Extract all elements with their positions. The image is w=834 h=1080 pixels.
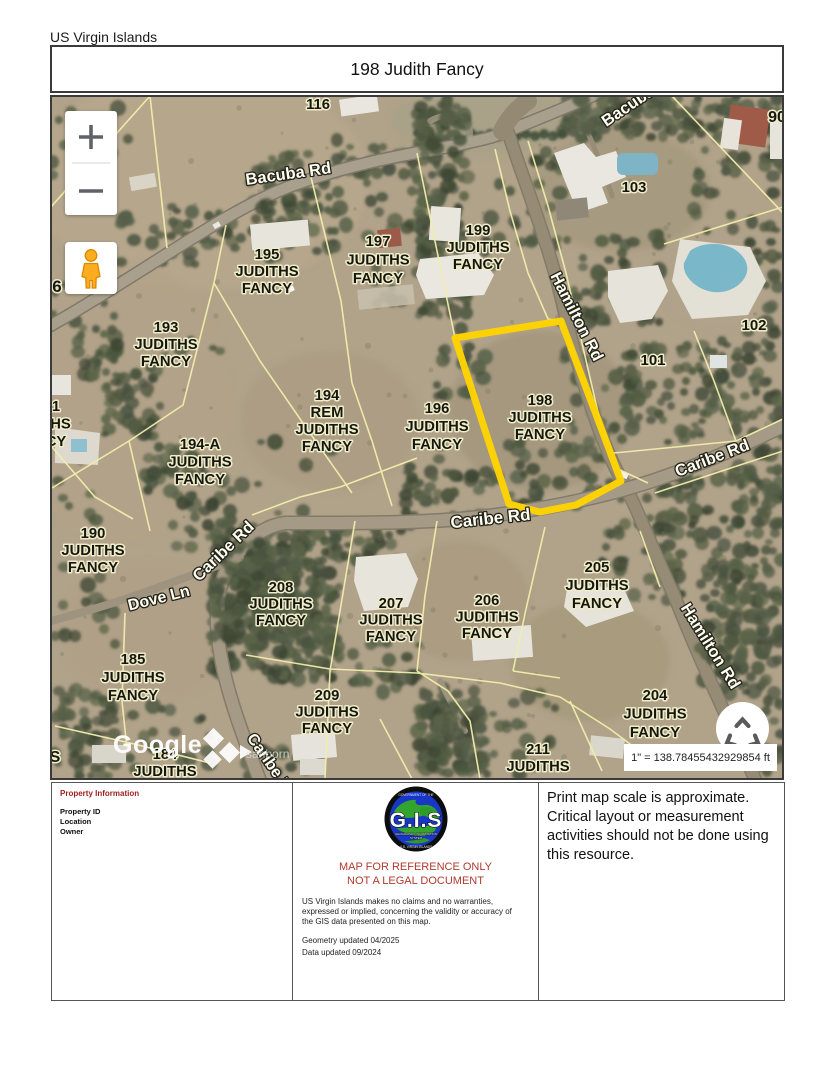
svg-text:JUDITHS: JUDITHS	[565, 578, 628, 594]
svg-text:FANCY: FANCY	[353, 271, 403, 287]
svg-text:FANCY: FANCY	[630, 725, 680, 741]
svg-text:209: 209	[315, 688, 340, 704]
svg-text:JUDITHS: JUDITHS	[359, 613, 422, 629]
svg-text:FANCY: FANCY	[453, 257, 503, 273]
svg-text:U.S. VIRGIN ISLANDS: U.S. VIRGIN ISLANDS	[399, 845, 432, 849]
svg-text:JUDITHS: JUDITHS	[61, 543, 124, 559]
svg-text:207: 207	[379, 596, 404, 612]
svg-text:FANCY: FANCY	[302, 721, 352, 737]
svg-text:JUDITHS: JUDITHS	[346, 253, 409, 269]
svg-text:90: 90	[768, 109, 782, 126]
svg-text:FANCY: FANCY	[175, 472, 225, 488]
svg-text:FANCY: FANCY	[572, 596, 622, 612]
svg-text:101: 101	[640, 352, 665, 369]
svg-text:JUDITHS: JUDITHS	[249, 597, 312, 613]
svg-text:211: 211	[526, 742, 550, 758]
svg-text:CY: CY	[52, 434, 66, 450]
svg-text:GOVERNMENT OF THE: GOVERNMENT OF THE	[398, 793, 433, 797]
svg-text:195: 195	[255, 247, 280, 263]
svg-text:204: 204	[643, 688, 668, 704]
svg-text:JUDITHS: JUDITHS	[295, 422, 358, 438]
svg-text:FANCY: FANCY	[302, 439, 352, 455]
svg-text:REM: REM	[311, 405, 344, 421]
svg-text:194-A: 194-A	[180, 437, 221, 453]
svg-text:JUDITHS: JUDITHS	[508, 410, 571, 426]
svg-text:197: 197	[366, 234, 391, 250]
svg-text:JUDITHS: JUDITHS	[133, 764, 196, 778]
svg-text:JUDITHS: JUDITHS	[446, 240, 509, 256]
svg-text:Google: Google	[113, 731, 202, 759]
svg-text:185: 185	[121, 652, 146, 668]
svg-text:SYSTEM: SYSTEM	[409, 836, 422, 840]
svg-text:sanborn: sanborn	[246, 747, 289, 761]
svg-text:JUDITHS: JUDITHS	[405, 419, 468, 435]
svg-text:194: 194	[315, 388, 340, 404]
svg-text:FANCY: FANCY	[256, 613, 306, 629]
svg-text:JUDITHS: JUDITHS	[506, 759, 569, 775]
svg-text:FANCY: FANCY	[366, 629, 416, 645]
svg-text:JUDITHS: JUDITHS	[101, 670, 164, 686]
svg-text:199: 199	[466, 223, 491, 239]
svg-text:THS: THS	[52, 417, 71, 433]
svg-text:198: 198	[528, 393, 553, 409]
svg-text:FANCY: FANCY	[242, 281, 292, 297]
svg-text:1: 1	[52, 399, 60, 415]
svg-text:JUDITHS: JUDITHS	[134, 337, 197, 353]
svg-text:FANCY: FANCY	[68, 560, 118, 576]
svg-text:206: 206	[475, 593, 500, 609]
svg-text:196: 196	[425, 401, 450, 417]
svg-text:S: S	[52, 749, 61, 766]
svg-text:JUDITHS: JUDITHS	[168, 455, 231, 471]
svg-text:190: 190	[81, 526, 106, 542]
svg-text:FANCY: FANCY	[515, 427, 565, 443]
svg-text:FANCY: FANCY	[141, 354, 191, 370]
svg-text:193: 193	[154, 320, 179, 336]
svg-text:JUDITHS: JUDITHS	[455, 610, 518, 626]
svg-text:205: 205	[585, 560, 610, 576]
svg-text:FANCY: FANCY	[108, 688, 158, 704]
svg-text:102: 102	[741, 317, 766, 334]
svg-text:6: 6	[52, 277, 61, 296]
svg-text:116: 116	[306, 97, 330, 113]
svg-text:JUDITHS: JUDITHS	[235, 264, 298, 280]
svg-text:FANCY: FANCY	[462, 626, 512, 642]
svg-text:208: 208	[269, 580, 294, 596]
svg-text:FANCY: FANCY	[412, 437, 462, 453]
svg-text:JUDITHS: JUDITHS	[295, 705, 358, 721]
svg-text:G.I.S: G.I.S	[389, 809, 442, 832]
svg-text:103: 103	[622, 180, 647, 196]
svg-text:JUDITHS: JUDITHS	[623, 707, 686, 723]
